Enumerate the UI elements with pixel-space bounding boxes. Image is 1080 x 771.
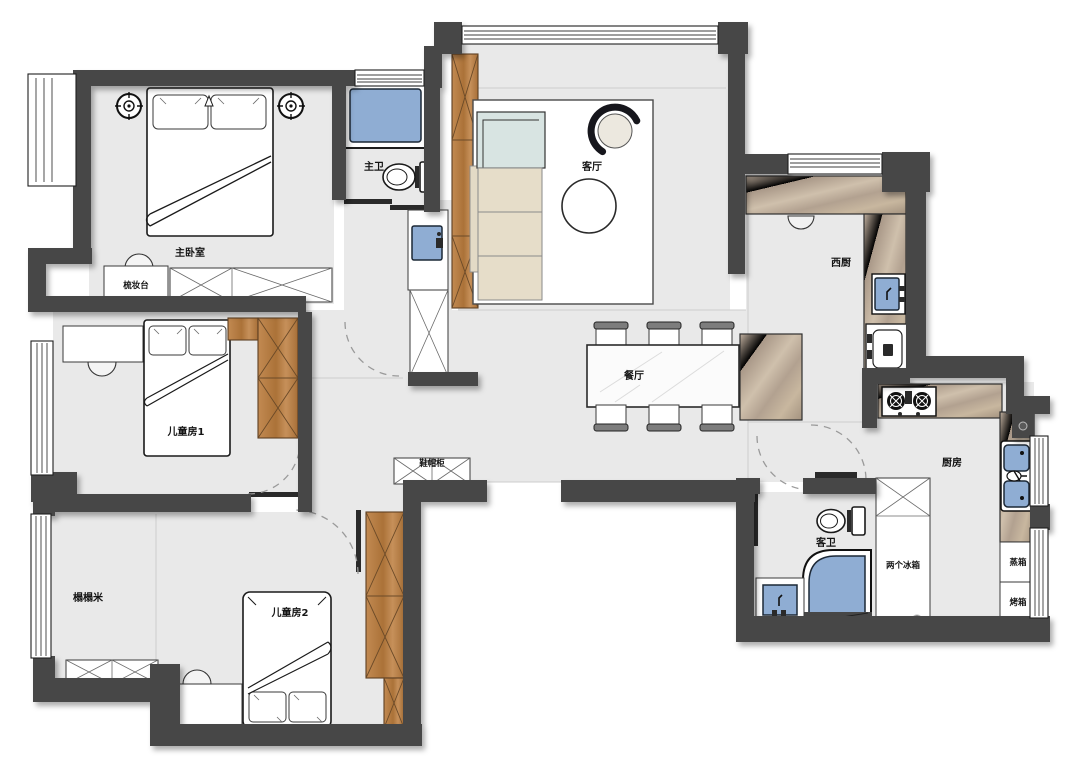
dining-chairs-top <box>594 322 734 347</box>
fridge-cabinet <box>876 478 930 625</box>
guest-bath-sink <box>756 578 804 622</box>
door-leaf <box>356 510 361 572</box>
pillow <box>289 692 326 722</box>
label-shoe-cabinet: 鞋帽柜 <box>419 458 445 469</box>
label-dining-room: 餐厅 <box>623 369 644 382</box>
chair <box>594 322 628 347</box>
sofa <box>470 112 545 300</box>
window-west-kitchen-top <box>788 154 882 174</box>
label-oven: 烤箱 <box>1009 597 1027 608</box>
label-kids-room-1: 儿童房1 <box>167 425 205 438</box>
master-bed <box>147 88 274 236</box>
corridor-entry <box>312 480 403 512</box>
door-leaf <box>249 492 301 497</box>
chair <box>647 405 681 431</box>
label-steam-oven: 蒸箱 <box>1009 557 1027 568</box>
chair <box>700 322 734 347</box>
label-dresser: 梳妆台 <box>122 280 149 291</box>
chair <box>647 322 681 347</box>
pillow <box>211 95 266 129</box>
window-bay-master <box>28 74 76 186</box>
window-kitchen-right-1 <box>1030 436 1048 506</box>
west-kitchen-sink <box>872 274 905 314</box>
pillow <box>153 95 208 129</box>
door-leaf <box>815 472 857 478</box>
label-tatami: 榻榻米 <box>73 591 104 604</box>
pillow <box>249 692 286 722</box>
window-living-top <box>462 26 718 44</box>
label-living-room: 客厅 <box>581 160 602 173</box>
window-kids1-left <box>31 341 53 475</box>
room-tatami <box>48 512 158 684</box>
window-tatami-left <box>31 514 51 658</box>
cooktop <box>882 387 936 416</box>
label-master-bedroom: 主卧室 <box>175 246 205 259</box>
stone-island <box>740 334 802 420</box>
label-two-fridges: 两个冰箱 <box>886 560 921 571</box>
chair <box>700 405 734 431</box>
kitchen-double-sink <box>1001 441 1033 511</box>
floor-plan: 主卧室 梳妆台 主卫 客厅 西厨 餐厅 厨房 客卫 两个冰箱 蒸箱 烤箱 儿童房… <box>0 0 1080 771</box>
vanity-sink <box>408 210 448 290</box>
built-in-appliance <box>866 324 908 374</box>
label-kitchen: 厨房 <box>942 456 962 469</box>
label-kids-room-2: 儿童房2 <box>271 606 309 619</box>
bathtub <box>344 84 426 148</box>
window-master-bath-top <box>355 70 424 86</box>
chair <box>594 405 628 431</box>
window-kitchen-right-2 <box>1030 528 1048 618</box>
shower <box>800 550 872 624</box>
coffee-table <box>562 179 616 233</box>
label-master-bath: 主卫 <box>364 160 384 173</box>
dining-table <box>587 345 739 407</box>
label-guest-bath: 客卫 <box>815 536 836 549</box>
label-west-kitchen: 西厨 <box>831 257 851 269</box>
dining-chairs-bottom <box>594 405 734 431</box>
corridor-wardrobe <box>410 290 448 376</box>
